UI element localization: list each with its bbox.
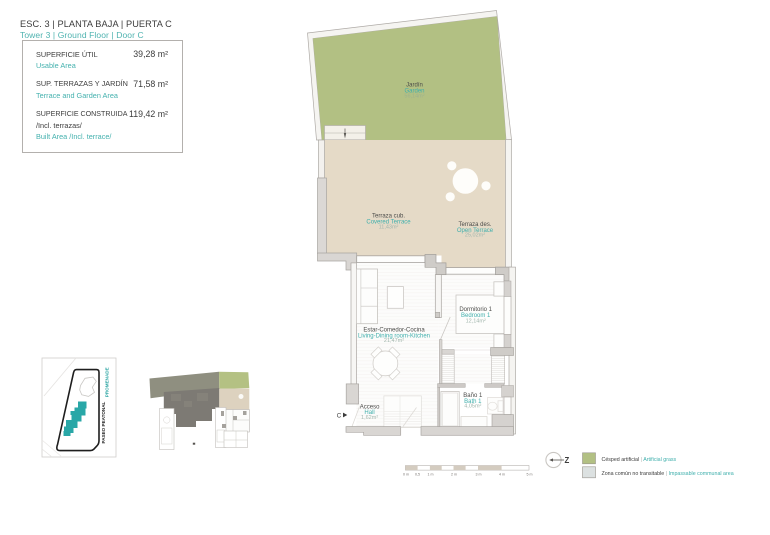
svg-text:5 m: 5 m [527, 472, 533, 476]
svg-text:1,62m²: 1,62m² [361, 415, 378, 421]
svg-text:1 m: 1 m [428, 472, 434, 476]
svg-text:Jardín: Jardín [406, 83, 423, 89]
svg-text:0,5: 0,5 [415, 472, 420, 476]
svg-text:12,14m²: 12,14m² [466, 319, 486, 325]
svg-text:Z: Z [565, 456, 570, 465]
svg-text:Zona común no transitable | Im: Zona común no transitable | Impassable c… [602, 471, 734, 477]
svg-text:PROMENADE: PROMENADE [104, 367, 109, 397]
svg-text:4,05m²: 4,05m² [464, 404, 481, 410]
svg-text:2 m: 2 m [451, 472, 457, 476]
svg-text:C: C [337, 413, 342, 420]
svg-text:11,43m²: 11,43m² [379, 224, 399, 230]
svg-text:PASEO PEATONAL: PASEO PEATONAL [101, 401, 106, 443]
svg-text:56,14m²: 56,14m² [404, 94, 424, 100]
svg-text:Césped artificial | Artificial: Césped artificial | Artificial grass [602, 457, 677, 463]
svg-text:0 m: 0 m [403, 472, 409, 476]
svg-text:25,02m²: 25,02m² [465, 233, 485, 239]
svg-text:3 m: 3 m [476, 472, 482, 476]
svg-text:21,47m²: 21,47m² [384, 338, 404, 344]
svg-text:4 m: 4 m [499, 472, 505, 476]
